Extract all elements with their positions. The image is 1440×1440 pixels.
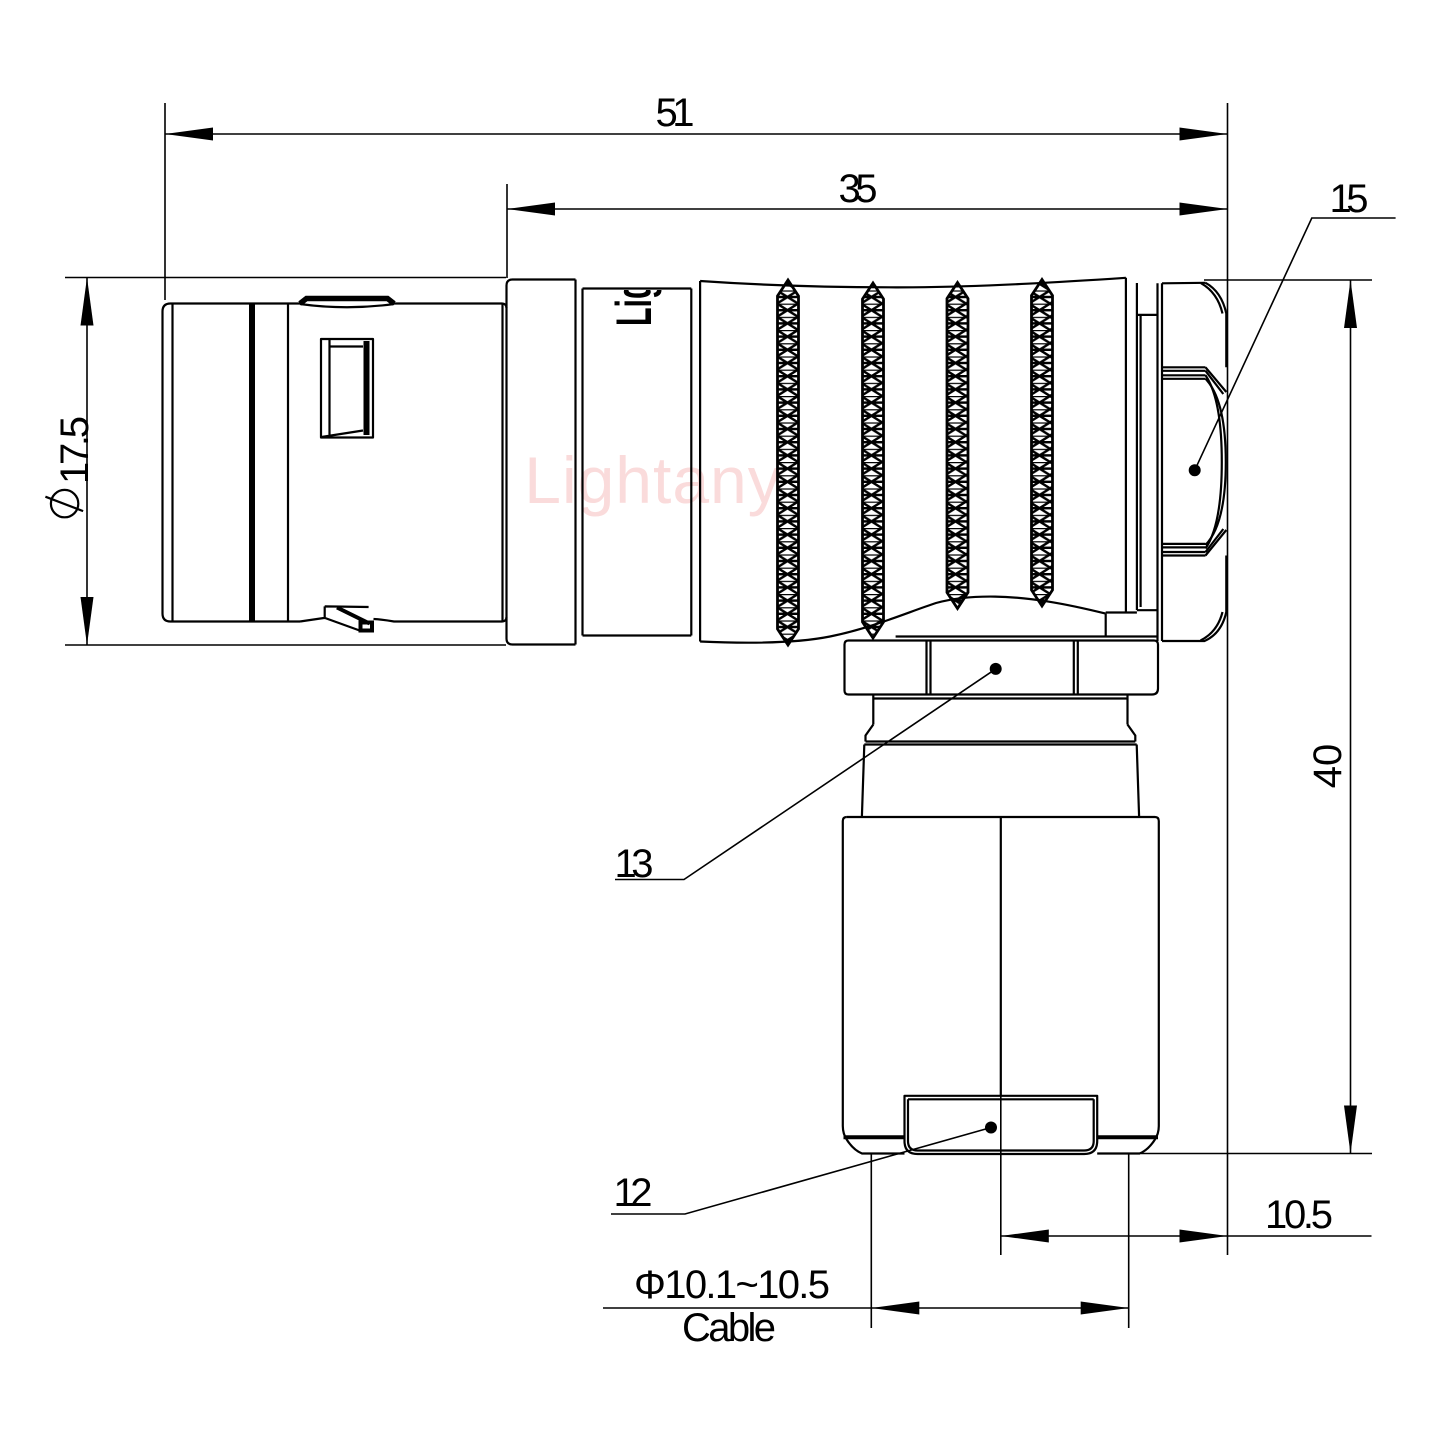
svg-text:12: 12 (614, 1171, 653, 1215)
svg-text:13: 13 (615, 842, 654, 886)
svg-text:51: 51 (656, 91, 695, 135)
svg-text:Φ10.1~10.5: Φ10.1~10.5 (634, 1263, 830, 1307)
svg-text:17.5: 17.5 (53, 416, 97, 484)
svg-text:15: 15 (1330, 177, 1369, 221)
svg-text:10.5: 10.5 (1265, 1193, 1333, 1237)
svg-text:35: 35 (839, 167, 878, 211)
svg-text:Lightany: Lightany (524, 443, 782, 517)
svg-text:Cable: Cable (682, 1306, 776, 1350)
svg-text:40: 40 (1306, 744, 1350, 789)
